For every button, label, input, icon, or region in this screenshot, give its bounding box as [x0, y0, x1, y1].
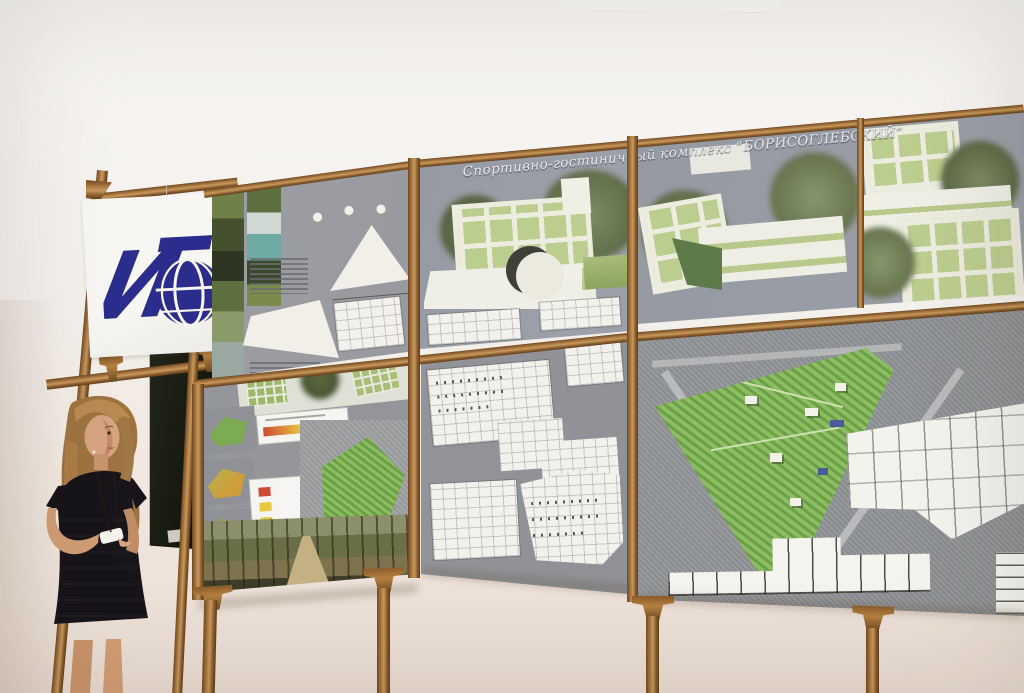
- stand-leg-3: [646, 616, 659, 693]
- section-drawing-2: [996, 552, 1024, 614]
- analysis-map-2-area: [203, 464, 249, 501]
- floor-plan-triangular-2: [243, 300, 339, 358]
- park-building: [745, 396, 757, 404]
- aerial-blue-accent-2: [818, 468, 828, 475]
- furniture-row-5: [532, 514, 602, 521]
- face: [85, 415, 120, 459]
- hedge-render: [583, 254, 631, 289]
- exhibition-room-photo: И: [0, 0, 1024, 693]
- text-block: [250, 258, 308, 294]
- ceiling-light: [553, 0, 791, 13]
- floor-plan-triangular: [330, 225, 410, 291]
- small-plan: [334, 297, 405, 352]
- park-path-2: [711, 427, 839, 452]
- presenter-woman: [18, 390, 193, 693]
- neck: [94, 454, 108, 470]
- earring: [93, 451, 96, 454]
- leg-right: [103, 639, 123, 693]
- park-building-3: [770, 453, 782, 462]
- grid-building-render-3: [897, 208, 1024, 312]
- stand-leg-4: [866, 628, 879, 693]
- eye: [107, 431, 110, 434]
- stand-vertical-rail-3: [857, 118, 864, 308]
- park-building-2: [805, 408, 818, 416]
- park-building-4: [835, 383, 846, 391]
- institute-logo: И: [99, 221, 229, 343]
- furniture-row-6: [533, 531, 588, 537]
- floor-plan-bottom-left: [430, 480, 520, 560]
- leg-left: [70, 640, 93, 693]
- stand-left-rail: [192, 384, 204, 600]
- analysis-map-1: [198, 406, 258, 455]
- stand-leg-2: [377, 588, 390, 693]
- analysis-map-1-area: [205, 411, 252, 449]
- furniture-row-3: [438, 405, 488, 412]
- furniture-row: [436, 376, 506, 385]
- stand-vertical-rail-1: [408, 158, 420, 578]
- floor-plan-bottom-right: [520, 467, 625, 568]
- analysis-map-2: [197, 458, 256, 506]
- facade-top-block: [561, 177, 591, 215]
- round-form: [516, 252, 564, 300]
- stand-vertical-rail-2: [627, 136, 638, 602]
- furniture-row-4: [531, 498, 601, 505]
- floor-plan-small-top: [564, 342, 623, 387]
- plan-strip: [427, 309, 521, 345]
- stand-leg-1: [202, 600, 217, 693]
- plan-strip-2: [539, 297, 621, 331]
- park-building-5: [790, 498, 801, 506]
- furniture-row-2: [437, 390, 507, 399]
- aerial-blue-accent: [830, 420, 844, 427]
- photo-strip-forest: [212, 190, 244, 380]
